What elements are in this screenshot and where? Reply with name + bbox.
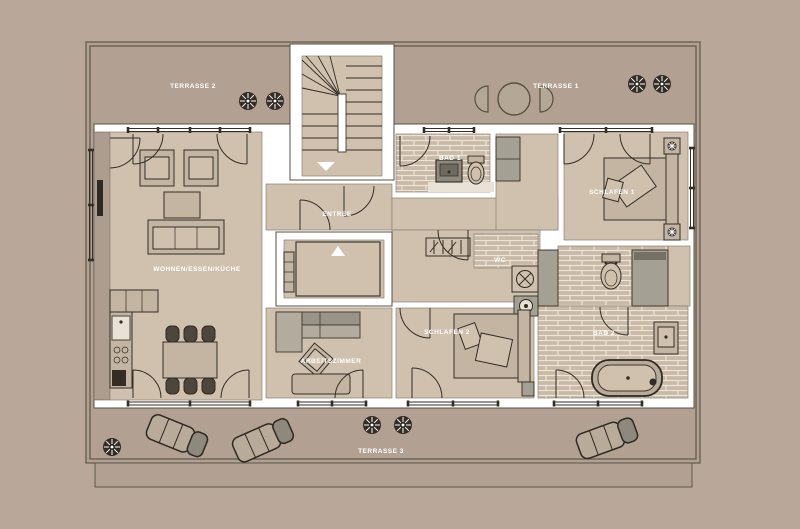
dining-chair: [184, 326, 197, 342]
room-label-wohnen: WOHNEN/ESSEN/KÜCHE: [153, 264, 241, 273]
room-label-terrasse1: TERRASSE 1: [533, 83, 579, 90]
shower-head-strip: [634, 252, 666, 260]
terrace-apron: [95, 463, 692, 487]
bathtub: [592, 360, 662, 396]
bed-headboard: [666, 154, 678, 224]
stair-stringer: [338, 94, 346, 152]
dining-chair: [184, 378, 197, 394]
lamp-icon: [668, 142, 677, 151]
bed-headboard: [518, 310, 530, 382]
toilet-icon: [468, 156, 484, 184]
floor-plan-canvas: TERRASSE 2 TERRASSE 1 TERRASSE 3 WOHNEN/…: [0, 0, 800, 529]
room-label-schlafen1: SCHLAFEN 1: [589, 189, 635, 196]
plant-icon: [394, 416, 412, 434]
coffee-table: [164, 192, 200, 218]
vanity-sink: [654, 322, 678, 354]
round-table: [498, 83, 530, 115]
desk: [292, 374, 350, 394]
wc-fixtures: [512, 266, 538, 316]
plant-icon: [653, 75, 671, 93]
plant-icon: [103, 438, 121, 456]
room-label-arbeitszimmer: ARBEITSZIMMER: [301, 358, 362, 365]
corner-floor: [668, 246, 690, 306]
coat-rack: [426, 238, 470, 256]
vanity-sink: [436, 160, 462, 182]
walkin-shower: [632, 250, 668, 306]
tv-panel: [97, 180, 103, 216]
dining-chair: [166, 378, 179, 394]
lamp-icon: [668, 228, 677, 237]
toilet-icon: [601, 254, 621, 289]
room-label-terrasse3: TERRASSE 3: [358, 448, 404, 455]
dining-chair: [202, 326, 215, 342]
plant-icon: [628, 75, 646, 93]
armchair: [140, 150, 174, 186]
dining-set: [163, 326, 217, 394]
room-wc-floor: [474, 234, 538, 268]
nightstand: [522, 382, 534, 396]
dining-chair: [202, 378, 215, 394]
west-wall-band: [94, 132, 110, 400]
plant-icon: [239, 92, 257, 110]
room-label-bad1: BAD 1: [439, 155, 461, 162]
shower-icon: [512, 266, 538, 292]
floor-plan-drawing: TERRASSE 2 TERRASSE 1 TERRASSE 3 WOHNEN/…: [0, 0, 800, 529]
tub-faucet: [650, 379, 657, 386]
wardrobe: [538, 250, 558, 306]
dining-chair: [166, 326, 179, 342]
dining-table: [163, 342, 217, 378]
room-label-entree: ENTREE: [322, 211, 352, 218]
room-label-wc: WC: [494, 257, 506, 264]
blanket: [475, 333, 512, 367]
room-label-schlafen2: SCHLAFEN 2: [424, 329, 470, 336]
room-label-bad2: BAD 2: [593, 330, 615, 337]
oven: [112, 370, 126, 386]
kitchen-sink: [112, 316, 130, 340]
lift-core: [276, 232, 392, 306]
sofa: [148, 220, 224, 254]
room-label-terrasse2: TERRASSE 2: [170, 83, 216, 90]
armchair: [184, 150, 218, 186]
bath1-counter: [428, 182, 494, 192]
staircase: [290, 44, 394, 180]
plant-icon: [266, 92, 284, 110]
plant-icon: [363, 416, 381, 434]
